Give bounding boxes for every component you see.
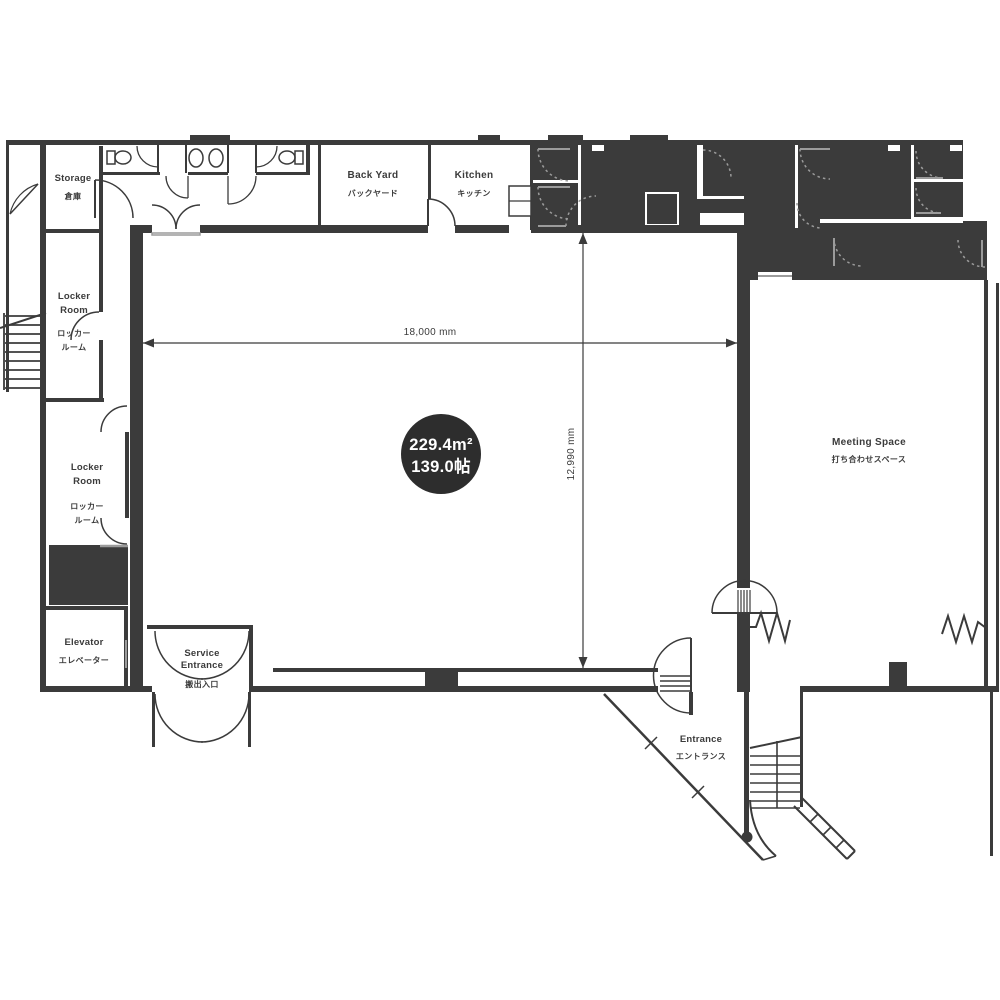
locker-room-1-label-ja1: ロッカー: [57, 329, 91, 338]
kitchen-label-en: Kitchen: [455, 170, 494, 181]
dimension-width: 18,000 mm: [143, 327, 737, 348]
filled-rooms: [49, 135, 987, 692]
area-m2-label: 229.4m²: [409, 436, 473, 454]
storage-label-ja: 倉庫: [64, 191, 82, 201]
width-dimension-label: 18,000 mm: [404, 327, 457, 338]
shaft-room: [49, 545, 128, 605]
toilet-icon: [115, 151, 131, 164]
entrance-label-en: Entrance: [680, 734, 722, 745]
locker-room-2-label-en1: Locker: [71, 462, 103, 473]
service-entrance-label-en2: Entrance: [181, 660, 223, 671]
floor-plan-page: 18,000 mm 12,990 mm 229.4m² 139.0帖 Stora…: [0, 0, 1000, 1000]
toilet-icon: [295, 151, 303, 164]
entrance-wall: [604, 694, 763, 860]
locker-room-1-label-ja2: ルーム: [62, 343, 87, 352]
locker-room-2-label-en2: Room: [73, 476, 101, 487]
sink-icon: [189, 149, 203, 167]
area-badge: 229.4m² 139.0帖: [401, 414, 481, 494]
meeting-space-label-en: Meeting Space: [832, 437, 906, 448]
stairs-left: [0, 313, 46, 390]
area-badge-circle: [401, 414, 481, 494]
service-entrance-label-en1: Service: [184, 648, 219, 659]
partition-zigzag-icon: [748, 613, 986, 642]
column-dot: [742, 832, 753, 843]
service-entrance-label-ja: 搬出入口: [185, 679, 219, 689]
back-yard-label-ja: バックヤード: [348, 188, 398, 198]
back-yard-label-en: Back Yard: [348, 170, 399, 181]
locker-room-1-label-en2: Room: [60, 305, 88, 316]
toilet-icon: [107, 151, 115, 164]
sink-icon: [209, 149, 223, 167]
locker-room-2-label-ja2: ルーム: [75, 516, 100, 525]
toilet-icon: [279, 151, 295, 164]
elevator-label-ja: エレベーター: [59, 655, 109, 665]
area-jo-label: 139.0帖: [411, 456, 471, 476]
kitchen-label-ja: キッチン: [457, 189, 491, 198]
storage-label-en: Storage: [55, 173, 92, 184]
locker-room-1-label-en1: Locker: [58, 291, 90, 302]
meeting-space-label-ja: 打ち合わせスペース: [832, 454, 907, 464]
dimension-height: 12,990 mm: [566, 233, 588, 668]
elevator-label-en: Elevator: [64, 637, 103, 648]
locker-room-2-label-ja1: ロッカー: [70, 502, 104, 511]
floor-plan: 18,000 mm 12,990 mm 229.4m² 139.0帖 Stora…: [0, 0, 1000, 1000]
entrance-label-ja: エントランス: [676, 752, 726, 761]
height-dimension-label: 12,990 mm: [566, 428, 577, 481]
